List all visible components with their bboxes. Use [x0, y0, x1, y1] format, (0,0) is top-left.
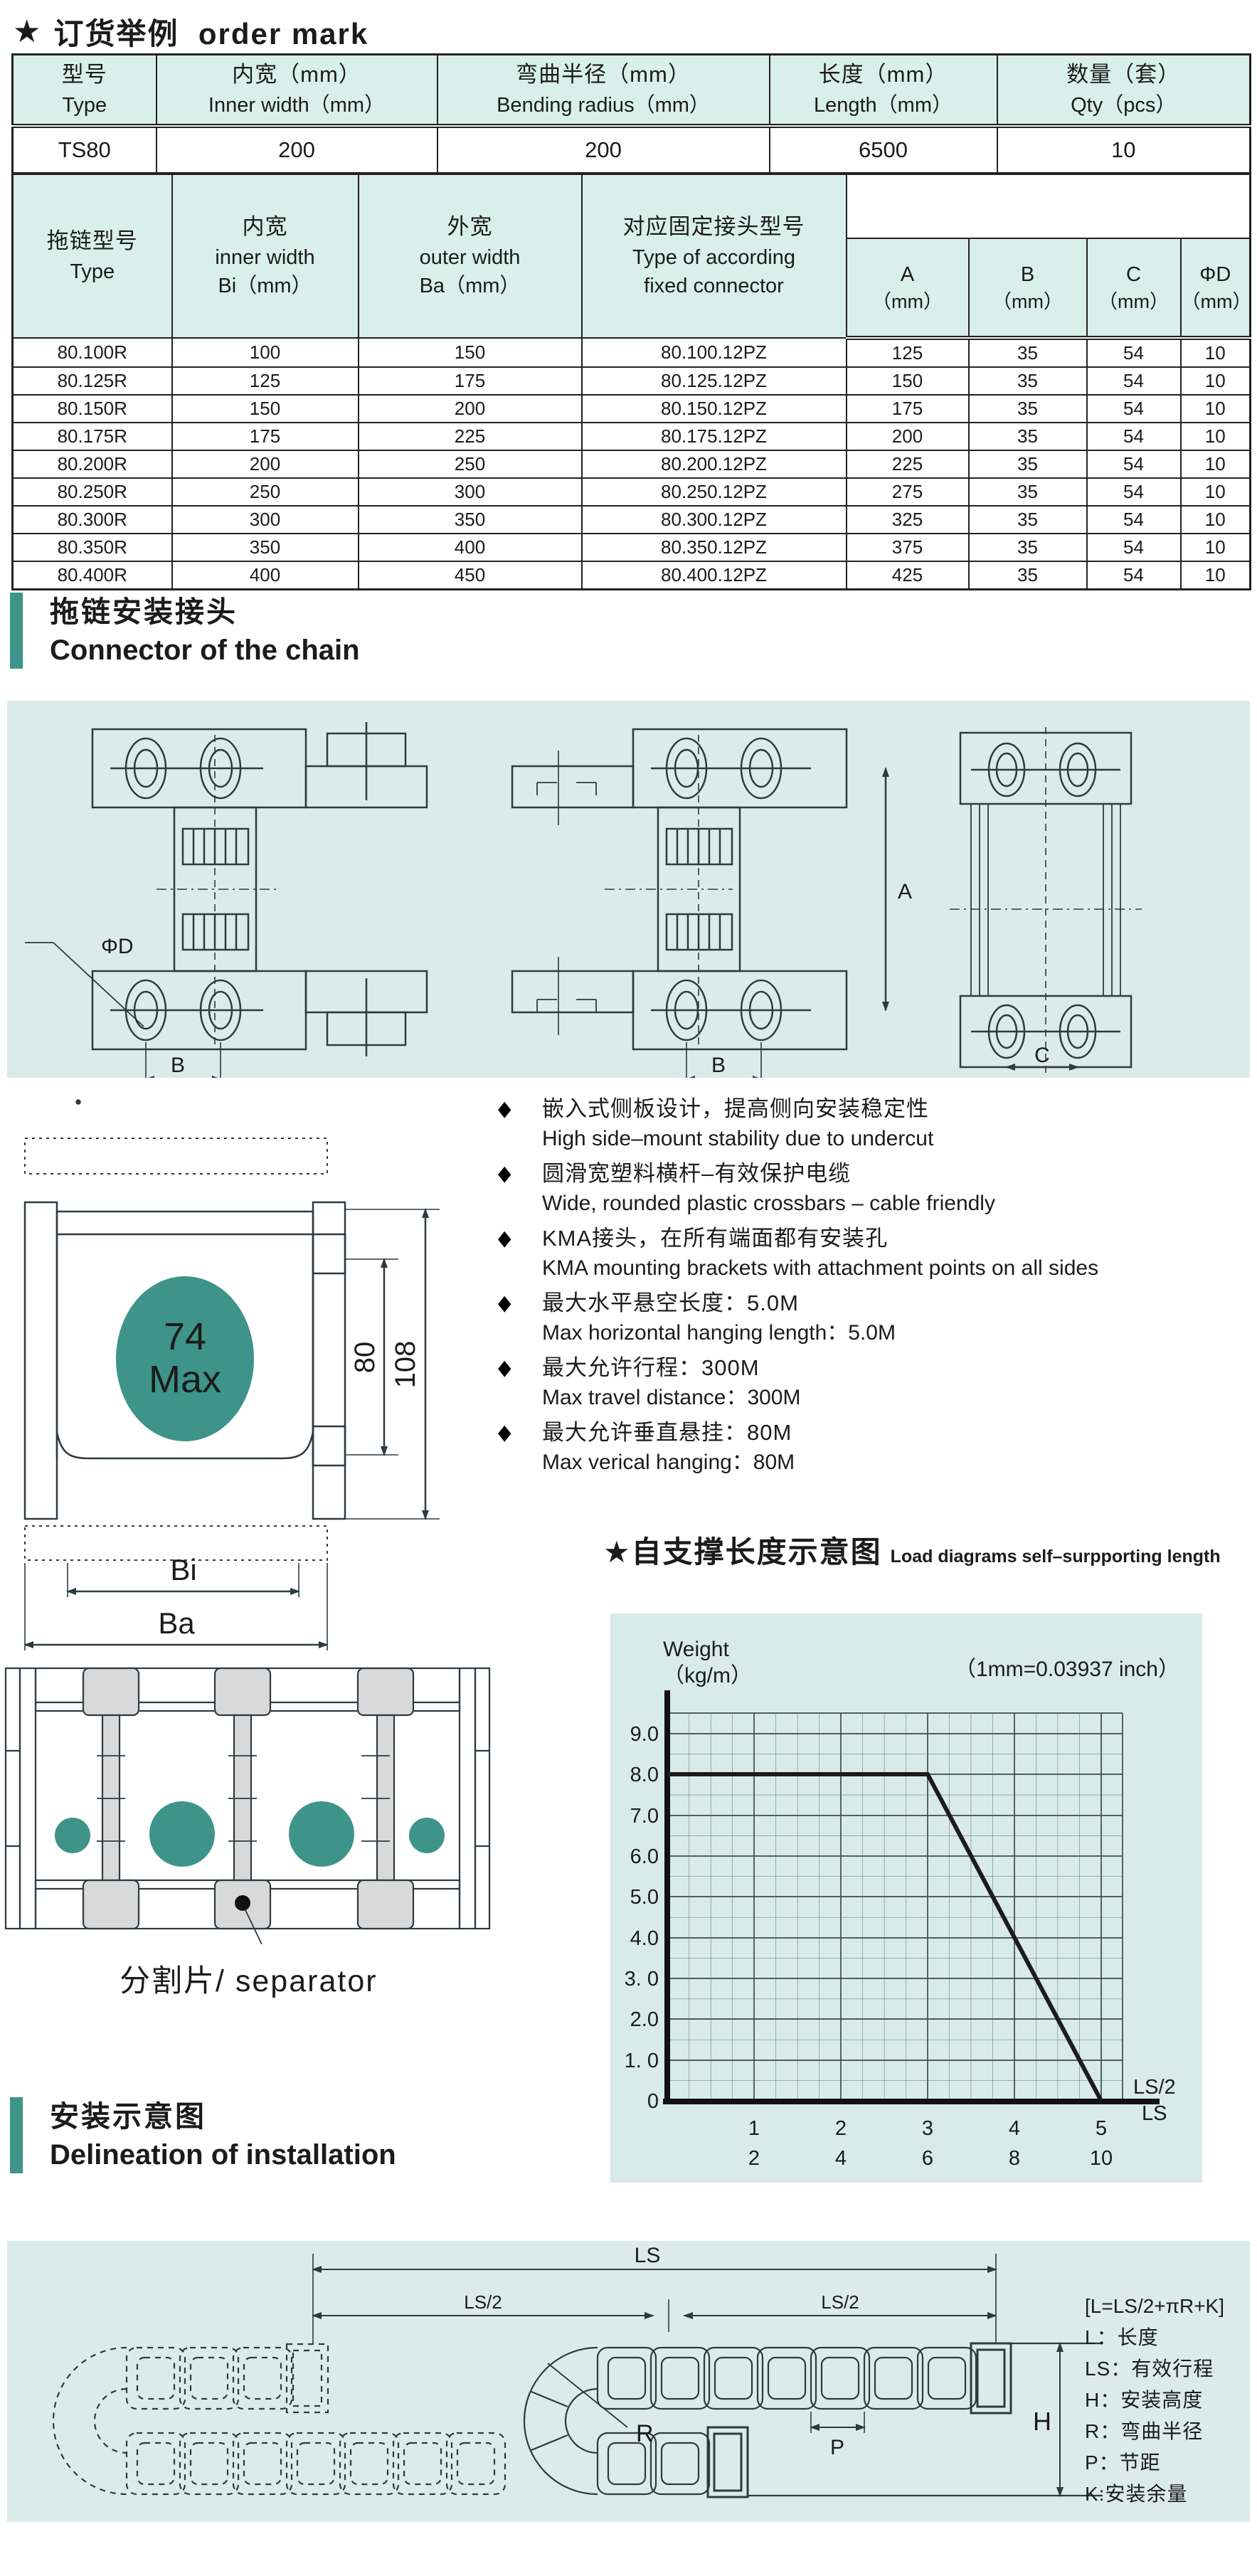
cell-bending-radius: 200	[437, 126, 770, 174]
x-tick-ls2: 2	[835, 2117, 847, 2140]
cell-qty: 10	[997, 126, 1251, 174]
dim-r-label: R	[636, 2420, 654, 2447]
dim-ls2-left-label: LS/2	[464, 2291, 502, 2313]
order-mark-heading: ★ 订货举例 order mark	[13, 10, 368, 53]
col-header-outer-width-ba: 外宽outer widthBa（mm）	[359, 174, 582, 339]
installation-section-heading: 安装示意图 Delineation of installation	[10, 2097, 396, 2173]
separator-drawing	[0, 1667, 541, 1944]
table-cell: 54	[1087, 338, 1181, 367]
order-mark-zh: 订货举例	[53, 17, 179, 51]
legend-line: P：节距	[1085, 2447, 1245, 2479]
dim-ba-label: Ba	[158, 1606, 195, 1640]
table-cell: 80.250R	[13, 478, 172, 506]
y-tick: 8.0	[630, 1764, 659, 1786]
table-cell: 80.400R	[13, 561, 172, 590]
installation-drawing-panel: LS LS/2 LS/2 P R H [L=LS/2+πR+K] L：长度 LS…	[7, 2241, 1250, 2522]
table-cell: 35	[969, 367, 1087, 395]
load-diagram-chart: Weight （kg/m） （1mm=0.03937 inch） 9.0 8.0…	[610, 1613, 1202, 2183]
table-cell: 54	[1087, 506, 1181, 534]
list-item: ◆最大水平悬空长度：5.0MMax horizontal hanging len…	[498, 1288, 1224, 1348]
list-item: ◆嵌入式侧板设计，提高侧向安装稳定性High side–mount stabil…	[498, 1094, 1224, 1154]
table-row: 80.150R15020080.150.12PZ175355410	[13, 395, 1251, 423]
table-header-row-1: 拖链型号Type 内宽inner widthBi（mm） 外宽outer wid…	[13, 174, 1251, 239]
dim-108-label: 108	[390, 1341, 421, 1389]
diamond-bullet-icon: ◆	[498, 1094, 534, 1154]
table-cell: 375	[847, 534, 969, 561]
table-cell: 150	[847, 367, 969, 395]
dim-bi-label: Bi	[170, 1553, 196, 1586]
dim-p-label: P	[830, 2436, 844, 2459]
table-cell: 125	[172, 367, 359, 395]
dim-b-mid-label: B	[711, 1054, 726, 1077]
y-tick: 5.0	[630, 1886, 659, 1909]
table-cell: 35	[969, 478, 1087, 506]
table-cell: 54	[1087, 367, 1181, 395]
section-title-en: Connector of the chain	[50, 632, 360, 669]
list-item: ◆最大允许行程：300MMax travel distance：300M	[498, 1353, 1224, 1413]
table-cell: 54	[1087, 423, 1181, 450]
star-icon: ★	[603, 1535, 632, 1569]
table-cell: 80.400.12PZ	[582, 561, 847, 590]
y-tick: 1. 0	[625, 2050, 659, 2072]
feature-list: ◆嵌入式侧板设计，提高侧向安装稳定性High side–mount stabil…	[498, 1094, 1224, 1483]
diamond-bullet-icon: ◆	[498, 1353, 534, 1413]
table-cell: 10	[1181, 506, 1251, 534]
table-cell: 250	[359, 450, 582, 478]
connector-section-heading: 拖链安装接头 Connector of the chain	[10, 593, 360, 669]
x-tick-ls: 10	[1090, 2147, 1113, 2170]
table-cell: 80.350R	[13, 534, 172, 561]
table-cell: 325	[847, 506, 969, 534]
table-header-row: 型号Type 内宽（mm）Inner width（mm） 弯曲半径（mm）Ben…	[13, 55, 1251, 127]
table-cell: 80.300.12PZ	[582, 506, 847, 534]
table-cell: 100	[172, 338, 359, 367]
table-cell: 35	[969, 338, 1087, 367]
order-mark-en: order mark	[198, 17, 368, 51]
col-header-length: 长度（mm）Length（mm）	[770, 55, 997, 127]
col-header-chain-type: 拖链型号Type	[13, 174, 172, 339]
x-tick-ls: 2	[748, 2147, 760, 2170]
table-row: 80.175R17522580.175.12PZ200355410	[13, 423, 1251, 450]
dim-a-label: A	[898, 880, 912, 903]
col-header-inner-width-bi: 内宽inner widthBi（mm）	[172, 174, 359, 339]
order-example-table: 型号Type 内宽（mm）Inner width（mm） 弯曲半径（mm）Ben…	[11, 53, 1251, 174]
table-cell: 250	[172, 478, 359, 506]
table-cell: 80.200R	[13, 450, 172, 478]
header-spacer	[847, 174, 1251, 239]
connector-drawing-panel: ΦD B B A C	[7, 701, 1250, 1078]
table-cell: 150	[359, 338, 582, 367]
table-row: 80.100R10015080.100.12PZ125355410	[13, 338, 1251, 367]
table-cell: 450	[359, 561, 582, 590]
y-tick: 4.0	[630, 1927, 659, 1950]
table-cell: 80.150.12PZ	[582, 395, 847, 423]
installation-legend: [L=LS/2+πR+K] L：长度 LS：有效行程 H：安装高度 R：弯曲半径…	[1085, 2291, 1245, 2510]
section-title-zh: 安装示意图	[50, 2097, 396, 2136]
cell-length: 6500	[770, 126, 997, 174]
table-cell: 80.150R	[13, 395, 172, 423]
table-cell: 10	[1181, 423, 1251, 450]
col-header-dim-a: A（mm）	[847, 238, 969, 338]
installation-drawing: LS LS/2 LS/2 P R H	[7, 2241, 1250, 2522]
table-cell: 10	[1181, 395, 1251, 423]
chart-title-en: Load diagrams self–surpporting length	[891, 1547, 1221, 1567]
catalog-page: ★ 订货举例 order mark 型号Type 内宽（mm）Inner wid…	[0, 0, 1257, 2576]
legend-line: L：长度	[1085, 2322, 1245, 2353]
separator-svg	[0, 1667, 541, 1944]
x-tick-ls2: 1	[748, 2117, 760, 2140]
table-cell: 175	[847, 395, 969, 423]
table-cell: 80.100.12PZ	[582, 338, 847, 367]
table-cell: 80.100R	[13, 338, 172, 367]
table-cell: 175	[359, 367, 582, 395]
cross-section-svg: 74 Max 80 108 Bi Ba	[14, 1099, 455, 1661]
table-cell: 80.175R	[13, 423, 172, 450]
table-cell: 200	[172, 450, 359, 478]
col-header-type: 型号Type	[13, 55, 157, 127]
table-cell: 80.125.12PZ	[582, 367, 847, 395]
table-cell: 80.300R	[13, 506, 172, 534]
x-tick-ls: 4	[835, 2147, 847, 2170]
type-dimension-table: 拖链型号Type 内宽inner widthBi（mm） 外宽outer wid…	[11, 173, 1251, 590]
legend-line: K:安装余量	[1085, 2479, 1245, 2510]
table-cell: 80.175.12PZ	[582, 423, 847, 450]
table-cell: 54	[1087, 478, 1181, 506]
unit-conversion-note: （1mm=0.03937 inch）	[955, 1658, 1179, 1681]
table-row: 80.250R25030080.250.12PZ275355410	[13, 478, 1251, 506]
length-formula: [L=LS/2+πR+K]	[1085, 2291, 1245, 2322]
diamond-bullet-icon: ◆	[498, 1159, 534, 1219]
table-cell: 54	[1087, 450, 1181, 478]
table-row: TS80 200 200 6500 10	[13, 126, 1251, 174]
dim-ls-label: LS	[635, 2244, 661, 2267]
y-tick: 6.0	[630, 1845, 659, 1868]
table-cell: 54	[1087, 395, 1181, 423]
y-tick: 7.0	[630, 1805, 659, 1828]
table-cell: 35	[969, 395, 1087, 423]
table-cell: 10	[1181, 534, 1251, 561]
x-tick-ls: 6	[922, 2147, 933, 2170]
dim-b-left-label: B	[171, 1054, 185, 1077]
table-cell: 200	[847, 423, 969, 450]
load-diagram-panel: Weight （kg/m） （1mm=0.03937 inch） 9.0 8.0…	[610, 1613, 1202, 2183]
max-cable-diameter-value: 74	[164, 1315, 206, 1358]
table-cell: 80.250.12PZ	[582, 478, 847, 506]
table-row: 80.125R12517580.125.12PZ150355410	[13, 367, 1251, 395]
dim-80-label: 80	[349, 1342, 381, 1374]
dim-ls2-right-label: LS/2	[821, 2291, 859, 2313]
section-title-zh: 拖链安装接头	[50, 593, 360, 632]
table-cell: 300	[172, 506, 359, 534]
cell-inner-width: 200	[157, 126, 437, 174]
table-row: 80.350R35040080.350.12PZ375355410	[13, 534, 1251, 561]
diamond-bullet-icon: ◆	[498, 1288, 534, 1348]
x-tick-ls2: 5	[1096, 2117, 1107, 2140]
x-tick-ls: 8	[1009, 2147, 1020, 2170]
table-cell: 225	[359, 423, 582, 450]
connector-technical-drawing: ΦD B B A C	[7, 701, 1250, 1078]
col-header-fixed-connector: 对应固定接头型号Type of accordingfixed connector	[582, 174, 847, 339]
cell-type: TS80	[13, 126, 157, 174]
table-cell: 35	[969, 534, 1087, 561]
dim-h-label: H	[1033, 2407, 1051, 2436]
col-header-inner-width: 内宽（mm）Inner width（mm）	[157, 55, 437, 127]
x-tick-ls2: 4	[1009, 2117, 1020, 2140]
table-cell: 35	[969, 450, 1087, 478]
table-row: 80.300R30035080.300.12PZ325355410	[13, 506, 1251, 534]
table-body: 80.100R10015080.100.12PZ12535541080.125R…	[13, 338, 1251, 590]
table-cell: 275	[847, 478, 969, 506]
col-header-dim-c: C（mm）	[1087, 238, 1181, 338]
table-row: 80.200R20025080.200.12PZ225355410	[13, 450, 1251, 478]
x-axis-label-ls: LS	[1142, 2102, 1167, 2125]
table-cell: 425	[847, 561, 969, 590]
y-tick: 2.0	[630, 2008, 659, 2031]
table-cell: 225	[847, 450, 969, 478]
table-cell: 10	[1181, 450, 1251, 478]
table-cell: 10	[1181, 367, 1251, 395]
x-axis-label-ls2: LS/2	[1133, 2076, 1176, 2099]
table-cell: 10	[1181, 338, 1251, 367]
legend-line: H：安装高度	[1085, 2385, 1245, 2416]
max-cable-diameter-unit: Max	[149, 1358, 221, 1401]
col-header-qty: 数量（套）Qty（pcs）	[997, 55, 1251, 127]
col-header-dim-b: B（mm）	[969, 238, 1087, 338]
diamond-bullet-icon: ◆	[498, 1224, 534, 1283]
list-item: ◆圆滑宽塑料横杆–有效保护电缆Wide, rounded plastic cro…	[498, 1159, 1224, 1219]
table-cell: 54	[1087, 534, 1181, 561]
table-cell: 350	[359, 506, 582, 534]
legend-line: R：弯曲半径	[1085, 2416, 1245, 2447]
y-tick: 3. 0	[625, 1968, 659, 1991]
dim-c-label: C	[1034, 1044, 1050, 1067]
col-header-dim-d: ΦD（mm）	[1181, 238, 1251, 338]
table-cell: 54	[1087, 561, 1181, 590]
phi-d-dim-label: ΦD	[101, 935, 134, 958]
table-cell: 80.125R	[13, 367, 172, 395]
table-cell: 10	[1181, 561, 1251, 590]
table-cell: 400	[359, 534, 582, 561]
diamond-bullet-icon: ◆	[498, 1418, 534, 1478]
table-cell: 300	[359, 478, 582, 506]
table-cell: 10	[1181, 478, 1251, 506]
chart-title-zh: 自支撑长度示意图	[632, 1535, 882, 1569]
table-cell: 80.200.12PZ	[582, 450, 847, 478]
table-cell: 35	[969, 423, 1087, 450]
table-cell: 35	[969, 561, 1087, 590]
y-axis-title-line2: （kg/m）	[663, 1664, 752, 1687]
y-tick: 9.0	[630, 1723, 659, 1746]
y-tick: 0	[647, 2090, 659, 2113]
list-item: ◆最大允许垂直悬挂：80MMax verical hanging：80M	[498, 1418, 1224, 1478]
chain-cross-section-drawing: 74 Max 80 108 Bi Ba	[14, 1099, 455, 1661]
chart-title: ★自支撑长度示意图Load diagrams self–surpporting …	[603, 1528, 1221, 1571]
y-axis-title-line1: Weight	[663, 1638, 729, 1661]
table-cell: 200	[359, 395, 582, 423]
table-cell: 150	[172, 395, 359, 423]
table-cell: 80.350.12PZ	[582, 534, 847, 561]
table-cell: 175	[172, 423, 359, 450]
list-item: ◆KMA接头，在所有端面都有安装孔KMA mounting brackets w…	[498, 1224, 1224, 1283]
x-tick-ls2: 3	[922, 2117, 933, 2140]
table-cell: 35	[969, 506, 1087, 534]
separator-label: 分割片/ separator	[120, 1956, 378, 2000]
table-cell: 400	[172, 561, 359, 590]
col-header-bending-radius: 弯曲半径（mm）Bending radius（mm）	[437, 55, 770, 127]
legend-line: LS：有效行程	[1085, 2353, 1245, 2385]
table-row: 80.400R40045080.400.12PZ425355410	[13, 561, 1251, 590]
star-icon: ★	[13, 16, 41, 48]
table-cell: 350	[172, 534, 359, 561]
table-cell: 125	[847, 338, 969, 367]
section-title-en: Delineation of installation	[50, 2136, 396, 2173]
